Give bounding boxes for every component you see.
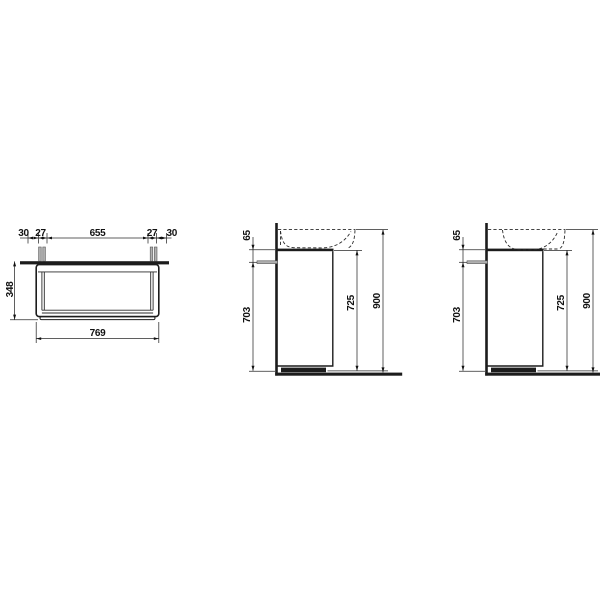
cabinet-front-outline: [36, 265, 159, 320]
front-top-dimension-chain: 30 27 655 27 30: [18, 228, 178, 244]
side-section-view-b: 65 703 725 900: [452, 223, 600, 376]
dim-front-pin-right: 27: [147, 228, 158, 239]
dim-side-a-body-height: 703: [242, 306, 253, 323]
side-section-view-a: 65 703 725 900: [242, 223, 402, 376]
dim-side-b-body-height: 703: [452, 306, 463, 323]
dim-front-overhang-right: 30: [167, 228, 178, 239]
hanger-pins: [39, 247, 157, 261]
front-elevation-view: 30 27 655 27 30 348 769: [5, 228, 178, 343]
front-width-dimension: 769: [36, 322, 159, 343]
dim-front-width: 769: [90, 328, 107, 339]
dim-front-height: 348: [5, 281, 16, 298]
dim-side-a-bracket-offset: 65: [242, 230, 253, 241]
washbasin-outline-b: [488, 230, 565, 250]
dim-front-pin-left: 27: [35, 228, 46, 239]
technical-drawing-canvas: 30 27 655 27 30 348 769: [0, 0, 600, 600]
dimension-drawing: 30 27 655 27 30 348 769: [0, 0, 600, 600]
dim-front-overhang-left: 30: [18, 228, 29, 239]
dim-side-b-bracket-offset: 65: [452, 230, 463, 241]
dim-front-center-span: 655: [90, 228, 107, 239]
dim-side-b-cabinet-top-height: 725: [556, 294, 567, 311]
washbasin-outline-a: [278, 230, 355, 249]
front-height-dimension: 348: [5, 261, 38, 319]
cabinet-bottom-lip: [40, 317, 155, 320]
dim-side-b-overall-height: 900: [582, 292, 593, 309]
dim-side-a-cabinet-top-height: 725: [346, 294, 357, 311]
dim-side-a-overall-height: 900: [372, 292, 383, 309]
